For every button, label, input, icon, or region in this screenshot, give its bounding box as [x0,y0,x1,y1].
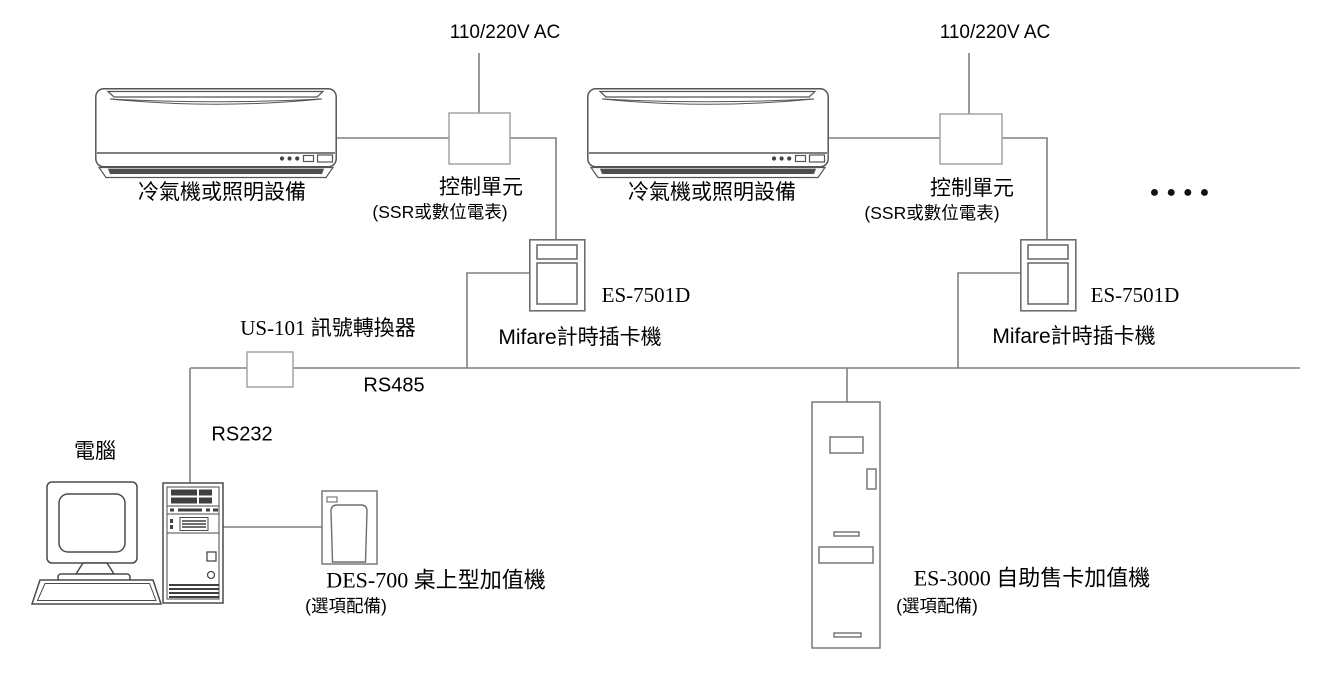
power-label-left: 110/220V AC [450,22,561,44]
des700-device-icon [322,491,377,564]
computer-icon [32,482,223,604]
card-reader-model-left: ES-7501D [602,283,691,307]
diagram-canvas: 110/220V AC 110/220V AC 冷氣機或照明設備 冷氣機或照明設… [0,0,1325,673]
air-conditioner-icon-right [588,89,828,178]
tower-icon [163,483,223,603]
monitor-icon [47,482,137,581]
reader-left-to-bus [467,273,529,368]
ac-unit-label-left: 冷氣機或照明設備 [138,181,306,205]
rs232-label: RS232 [211,424,272,447]
keyboard-icon [32,580,161,604]
rs485-label: RS485 [363,375,424,398]
us101-converter-box [247,352,293,387]
card-reader-model-right: ES-7501D [1091,283,1180,307]
control-unit-sublabel-right: (SSR或數位電表) [864,203,999,223]
reader-right-to-bus [958,273,1020,368]
ac-unit-label-right: 冷氣機或照明設備 [628,181,796,205]
card-reader-label-left: Mifare計時插卡機 [498,326,661,350]
card-reader-label-right: Mifare計時插卡機 [992,325,1155,349]
computer-label: 電腦 [74,440,116,464]
control-unit-label-right: 控制單元 [930,177,1014,201]
signal-converter-label: US-101 訊號轉換器 [240,316,416,340]
des700-label: DES-700 桌上型加值機 [326,567,545,592]
control-unit-label-left: 控制單元 [439,176,523,200]
kiosk-icon [812,402,880,648]
card-reader-icon-left [530,240,585,311]
more-units-ellipsis: ●●●● [1150,184,1217,202]
es3000-label: ES-3000 自助售卡加值機 [914,565,1151,590]
es3000-sublabel: (選項配備) [896,596,978,616]
des700-sublabel: (選項配備) [305,596,387,616]
control-unit-sublabel-left: (SSR或數位電表) [372,202,507,222]
card-reader-icon-right [1021,240,1076,311]
control-unit-box-right [940,114,1002,164]
control-unit-box-left [449,113,510,164]
air-conditioner-icon-left [96,89,336,178]
power-label-right: 110/220V AC [940,22,1051,44]
